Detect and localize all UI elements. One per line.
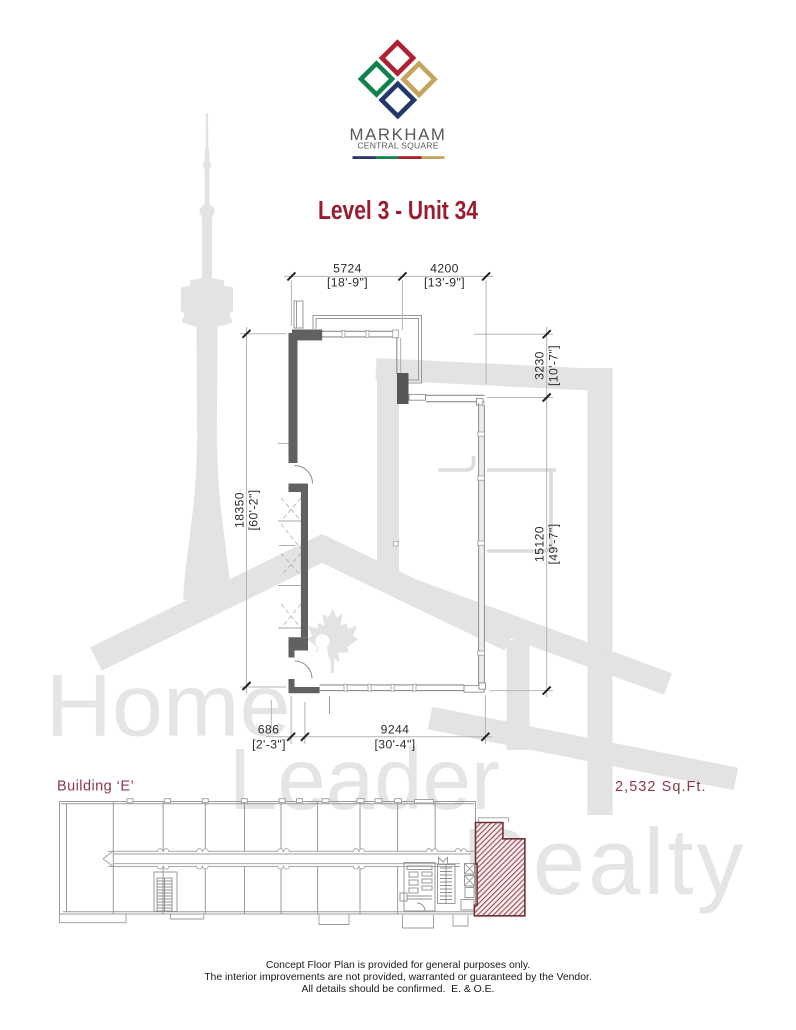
svg-text:4200: 4200 xyxy=(430,261,459,275)
svg-text:All details should be confirme: All details should be confirmed. E. & O.… xyxy=(302,984,495,995)
svg-text:[10'-7"]: [10'-7"] xyxy=(547,345,561,386)
svg-text:Building ‘E’: Building ‘E’ xyxy=(57,779,134,795)
svg-text:3230: 3230 xyxy=(533,351,547,380)
svg-text:CENTRAL SQUARE: CENTRAL SQUARE xyxy=(357,140,438,150)
svg-text:15120: 15120 xyxy=(533,526,547,562)
svg-text:[18'-9"]: [18'-9"] xyxy=(327,275,368,289)
svg-text:[2'-3"]: [2'-3"] xyxy=(252,738,286,752)
svg-text:The interior improvements are: The interior improvements are not provid… xyxy=(204,972,592,983)
svg-text:Concept Floor Plan is provided: Concept Floor Plan is provided for gener… xyxy=(266,960,530,971)
svg-text:Level 3 - Unit 34: Level 3 - Unit 34 xyxy=(318,197,479,225)
svg-text:686: 686 xyxy=(258,723,280,737)
svg-text:[13'-9"]: [13'-9"] xyxy=(424,275,465,289)
svg-text:[49'-7"]: [49'-7"] xyxy=(547,523,561,564)
svg-text:[60'-2"]: [60'-2"] xyxy=(247,489,261,530)
svg-text:5724: 5724 xyxy=(333,261,362,275)
svg-text:18350: 18350 xyxy=(233,492,247,528)
svg-text:9244: 9244 xyxy=(381,723,410,737)
svg-text:2,532 Sq.Ft.: 2,532 Sq.Ft. xyxy=(615,779,707,795)
svg-text:[30'-4"]: [30'-4"] xyxy=(374,738,415,752)
